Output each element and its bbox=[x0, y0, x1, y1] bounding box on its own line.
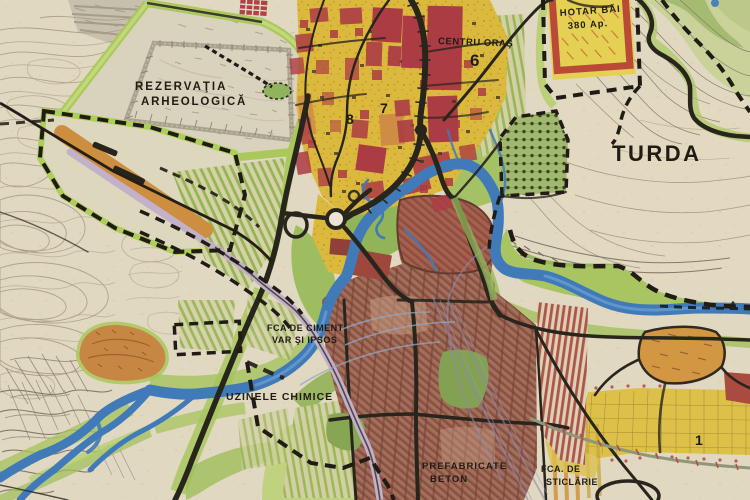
svg-text:7: 7 bbox=[380, 100, 388, 116]
svg-text:TURDA: TURDA bbox=[612, 141, 702, 166]
svg-text:FCA. DE: FCA. DE bbox=[541, 464, 581, 474]
svg-text:PREFABRICATE: PREFABRICATE bbox=[422, 461, 507, 472]
svg-text:FCA DE CIMENT: FCA DE CIMENT bbox=[267, 323, 344, 333]
svg-text:BETON: BETON bbox=[430, 474, 468, 485]
svg-text:1: 1 bbox=[695, 432, 703, 448]
svg-text:STICLĂRIE: STICLĂRIE bbox=[546, 477, 598, 487]
svg-text:6: 6 bbox=[470, 51, 479, 70]
svg-text:A: A bbox=[729, 300, 737, 312]
svg-text:VAR ŞI IPSOS: VAR ŞI IPSOS bbox=[272, 335, 337, 345]
svg-text:ARHEOLOGICĂ: ARHEOLOGICĂ bbox=[141, 95, 247, 108]
svg-text:REZERVAŢIA: REZERVAŢIA bbox=[135, 81, 227, 93]
svg-text:8: 8 bbox=[346, 111, 354, 127]
svg-text:UZINELE CHIMICE: UZINELE CHIMICE bbox=[226, 391, 333, 403]
